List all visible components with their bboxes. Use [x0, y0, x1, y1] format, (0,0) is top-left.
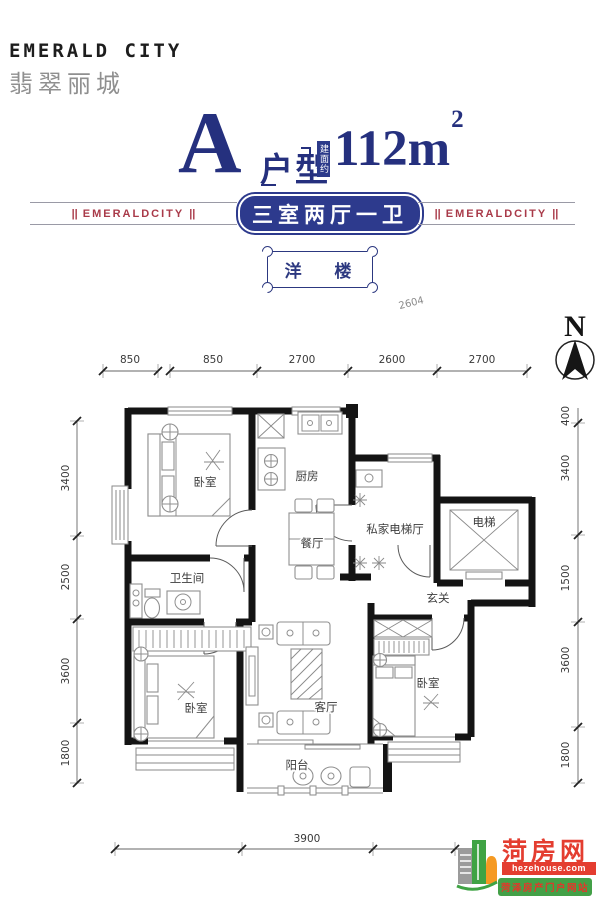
room-label-elevator: 电梯 [473, 516, 496, 529]
room-label-bathroom: 卫生间 [170, 571, 205, 585]
site-logo-icon [456, 834, 498, 894]
sliding-door-balcony [305, 745, 360, 749]
dimension-left: 3400 2500 3600 1800 [60, 417, 84, 787]
room-label-foyer: 玄关 [427, 591, 450, 605]
floor-plan: 2604 N 850 850 2700 2600 2700 3400 2500 … [0, 0, 600, 900]
north-label: N [564, 310, 586, 343]
site-url: hezehouse.com [502, 862, 596, 875]
stray-dimension-label: 2604 [398, 295, 425, 312]
bay-window-bedroom-right [388, 742, 460, 762]
room-label-bedroom-bottom-right: 卧室 [417, 676, 440, 690]
dim-label: 850 [120, 354, 140, 366]
room-label-living: 客厅 [315, 700, 338, 714]
room-label-elevator-hall: 私家电梯厅 [366, 522, 424, 536]
dim-label: 3400 [560, 455, 572, 482]
dim-label: 2700 [469, 354, 496, 366]
dim-label: 3400 [60, 465, 72, 492]
furniture-living-room [246, 622, 330, 734]
dim-label: 3600 [60, 658, 72, 685]
furniture-bedroom-top [148, 424, 230, 516]
furniture-elevator-hall [353, 470, 386, 570]
compass-needle-icon [562, 340, 588, 380]
dim-label: 1800 [560, 742, 572, 769]
structural-column [346, 404, 358, 418]
furniture-bathroom [130, 584, 200, 618]
dim-label: 850 [203, 354, 223, 366]
room-label-kitchen: 厨房 [296, 470, 319, 483]
dimension-right: 400 3400 1500 3600 1800 [560, 406, 585, 787]
dim-label: 2700 [289, 354, 316, 366]
site-watermark: 菏房网 hezehouse.com 菏泽房产门户网站 [456, 832, 598, 896]
dim-label: 2600 [379, 354, 406, 366]
dim-label: 3900 [294, 833, 321, 845]
north-compass: N [556, 310, 594, 380]
dim-label: 1800 [60, 740, 72, 767]
site-tagline: 菏泽房产门户网站 [498, 878, 592, 896]
room-label-bedroom-bottom-left: 卧室 [185, 701, 208, 715]
sliding-door-balcony [258, 740, 313, 744]
dim-label: 3600 [560, 647, 572, 674]
room-label-dining: 餐厅 [301, 536, 324, 550]
room-label-balcony: 阳台 [286, 758, 309, 772]
dim-label: 2500 [60, 564, 72, 591]
furniture-bedroom-bottom-left [133, 627, 251, 741]
bay-window-bedroom-left [136, 748, 234, 770]
dimension-bottom: 3900 [111, 833, 460, 856]
room-label-bedroom-top: 卧室 [194, 475, 217, 489]
dimension-top: 850 850 2700 2600 2700 [99, 354, 531, 378]
dim-label: 1500 [560, 565, 572, 592]
dim-label: 400 [560, 406, 572, 426]
